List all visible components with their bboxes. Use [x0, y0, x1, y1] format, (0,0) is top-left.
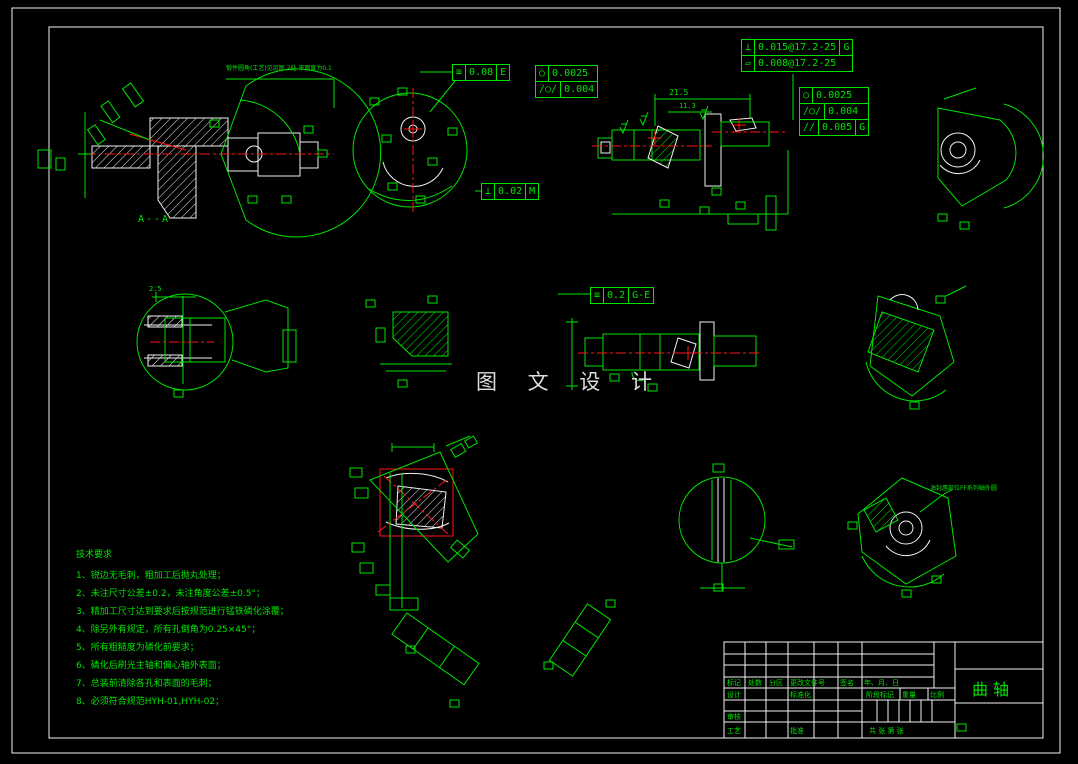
titleblock-review-label: 审核 [727, 713, 741, 721]
tolerance-frame-perpendicularity-0015: ⊥ 0.015@17.2-25 G [741, 39, 853, 56]
datum-ref: G [839, 40, 852, 55]
view-counterweight-iso-left [392, 613, 479, 707]
perpendicularity-icon: ⊥ [482, 184, 494, 199]
tolerance-frame-parallelism-0005: // 0.005 G [799, 119, 869, 136]
dim-11-3: 11.3 [679, 102, 696, 110]
tolerance-value: 0.005 [818, 120, 855, 135]
tolerance-frame-cylindricity-2: /○/ 0.004 [799, 103, 869, 120]
cylindricity-icon: /○/ [800, 104, 824, 119]
tech-requirements-title: 技术要求 [76, 546, 289, 564]
perpendicularity-icon: ⊥ [742, 40, 754, 55]
circularity-icon: ○ [536, 66, 548, 81]
tolerance-value: 0.008@17.2-25 [754, 56, 839, 71]
tolerance-value: 0.0025 [812, 88, 855, 103]
tolerance-frame-symmetry-02: ≡ 0.2 G-E [590, 287, 654, 304]
titleblock-approve-label: 批准 [790, 727, 804, 735]
parallelism-icon: // [800, 120, 818, 135]
tolerance-frame-circularity-2: ○ 0.0025 [799, 87, 869, 104]
tech-requirement-item: 6、磷化后刷光主轴和偏心轴外表面； [76, 657, 289, 675]
tech-requirement-item: 3、精加工尺寸达到要求后按规范进行锰铁磷化涂覆； [76, 603, 289, 621]
seal-note: 油封唇部位FF系列轴外圆 [930, 483, 997, 492]
titleblock-rev-date: 年、月、日 [864, 679, 899, 687]
tolerance-frame-perpendicularity-002: ⊥ 0.02 M [481, 183, 539, 200]
titleblock-process-label: 工艺 [727, 727, 741, 735]
tolerance-value: 0.08 [465, 65, 496, 80]
tech-requirement-item: 4、除另外有规定，所有孔倒角为0.25×45°； [76, 621, 289, 639]
flatness-icon: ▱ [742, 56, 754, 71]
titleblock-rev-zone: 分区 [769, 679, 783, 687]
tolerance-value: 0.004 [560, 82, 597, 97]
tolerance-value: 0.2 [603, 288, 628, 303]
titleblock-weight-label: 重量 [902, 691, 916, 699]
view-bracket-mid [366, 296, 452, 387]
datum-ref: G-E [628, 288, 653, 303]
tolerance-frame-flatness-0008: ▱ 0.008@17.2-25 [741, 55, 853, 72]
view-crank-web-topright [938, 88, 1043, 229]
part-name: 曲轴 [972, 676, 1014, 700]
title-block-stamp-mark [957, 724, 966, 731]
watermark-text: 图 文 设 计 [476, 366, 664, 396]
tolerance-value: 0.004 [824, 104, 861, 119]
dim-21-5: 21.5 [669, 88, 688, 97]
view-crank-front [353, 72, 482, 214]
titleblock-sheet-info: 共 张 第 张 [869, 727, 904, 735]
forging-note: 锻件圆角(工艺)见另图 2处 平面度为0.1 [226, 63, 332, 72]
view-hub-section-left [137, 292, 296, 397]
titleblock-scale-label: 比例 [930, 691, 944, 699]
view-crank-web-bottom-right [848, 478, 956, 597]
tolerance-value: 0.02 [494, 184, 525, 199]
tech-requirement-item: 7、总装前清除各孔和表面的毛刺； [76, 675, 289, 693]
titleblock-stage-mark-label: 阶段标记 [866, 691, 894, 699]
tech-requirement-item: 1、锐边无毛刺，粗加工后抛丸处理； [76, 567, 289, 585]
tolerance-stack-mid: ○ 0.0025 /○/ 0.004 [535, 66, 598, 98]
titleblock-standardization-label: 标准化 [790, 691, 811, 699]
tolerance-frame-cylindricity-1: /○/ 0.004 [535, 81, 598, 98]
circularity-icon: ○ [800, 88, 812, 103]
tech-requirement-item: 2、未注尺寸公差±0.2，未注角度公差±0.5°； [76, 585, 289, 603]
symmetry-icon: ≡ [591, 288, 603, 303]
tech-requirement-item: 5、所有粗糙度为磷化前要求； [76, 639, 289, 657]
titleblock-rev-docno: 更改文件号 [790, 679, 825, 687]
view-counterweight-iso-right [544, 600, 615, 676]
titleblock-rev-sign: 签名 [840, 679, 854, 687]
tolerance-value: 0.015@17.2-25 [754, 40, 839, 55]
technical-requirements: 技术要求 1、锐边无毛刺，粗加工后抛丸处理； 2、未注尺寸公差±0.2，未注角度… [76, 546, 289, 711]
tech-requirement-item: 8、必须符合规范HYH-01,HYH-02； [76, 693, 289, 711]
dim-2-5: 2.5 [149, 285, 162, 293]
symmetry-icon: ≡ [453, 65, 465, 80]
cad-drawing-sheet: ≡ 0.08 E ⊥ 0.02 M ○ 0.0025 /○/ 0.004 ⊥ 0… [0, 0, 1078, 764]
tolerance-stack-right: ○ 0.0025 /○/ 0.004 // 0.005 G [799, 88, 869, 136]
titleblock-design-label: 设计 [727, 691, 741, 699]
view-detail-red [350, 436, 478, 610]
tolerance-frame-circularity-1: ○ 0.0025 [535, 65, 598, 82]
view-crank-web-mid-right [866, 286, 966, 409]
titleblock-rev-mark: 标记 [727, 679, 741, 687]
tolerance-frame-symmetry-008: ≡ 0.08 E [452, 64, 510, 81]
datum-ref: E [496, 65, 509, 80]
datum-ref: M [525, 184, 538, 199]
section-label: A--A [138, 214, 170, 225]
cylindricity-icon: /○/ [536, 82, 560, 97]
view-hub-circle-bottom [679, 464, 794, 591]
titleblock-rev-count: 处数 [748, 679, 762, 687]
datum-ref: G [855, 120, 868, 135]
tolerance-stack-topright: ⊥ 0.015@17.2-25 G ▱ 0.008@17.2-25 [741, 40, 853, 72]
tolerance-value: 0.0025 [548, 66, 591, 81]
view-shaft-top [592, 74, 793, 230]
view-section-aa [38, 69, 381, 237]
